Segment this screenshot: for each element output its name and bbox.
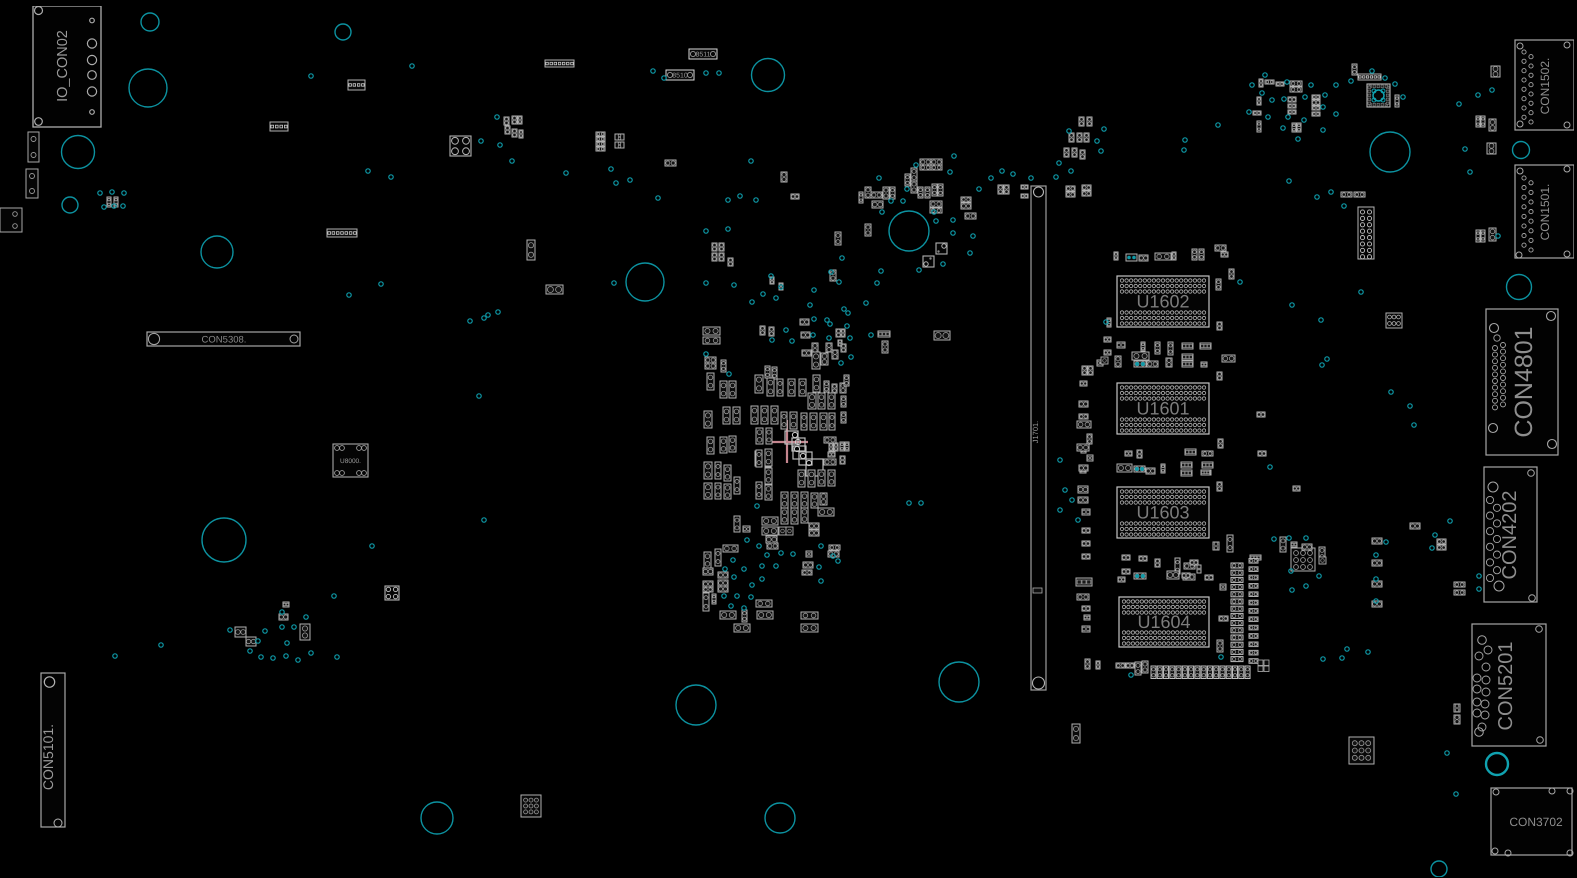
svg-text:CON4202: CON4202 bbox=[1499, 491, 1521, 580]
svg-text:8511: 8511 bbox=[695, 52, 710, 59]
svg-text:U1602: U1602 bbox=[1136, 292, 1189, 312]
svg-text:CON1502.: CON1502. bbox=[1538, 58, 1552, 115]
svg-text:IO_CON02: IO_CON02 bbox=[55, 30, 71, 102]
svg-text:CON4801: CON4801 bbox=[1510, 326, 1538, 437]
svg-text:U8000.: U8000. bbox=[340, 458, 361, 465]
svg-text:U1604: U1604 bbox=[1137, 612, 1190, 632]
svg-text:U1601: U1601 bbox=[1136, 399, 1189, 419]
svg-text:CON5101.: CON5101. bbox=[40, 724, 56, 790]
svg-text:CON5201: CON5201 bbox=[1495, 642, 1517, 731]
svg-text:U1603: U1603 bbox=[1136, 503, 1189, 523]
svg-text:CON3702: CON3702 bbox=[1509, 815, 1563, 829]
svg-text:CON1501.: CON1501. bbox=[1538, 184, 1552, 241]
svg-text:8510: 8510 bbox=[672, 73, 688, 80]
svg-text:CON5308.: CON5308. bbox=[202, 335, 247, 346]
svg-text:J1701.: J1701. bbox=[1031, 421, 1040, 444]
